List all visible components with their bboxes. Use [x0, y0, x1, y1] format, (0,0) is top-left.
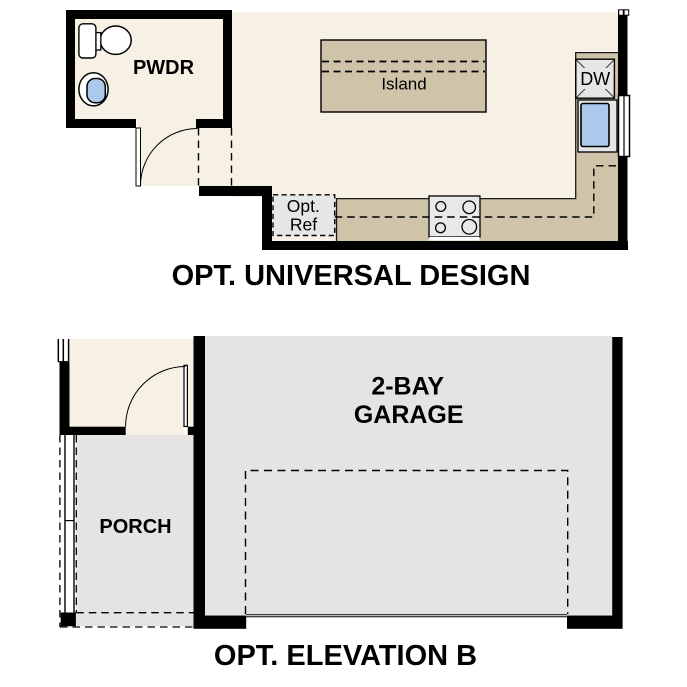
svg-text:OPT. ELEVATION B: OPT. ELEVATION B: [214, 640, 477, 672]
svg-text:DW: DW: [580, 69, 610, 89]
svg-text:Opt.: Opt.: [287, 196, 320, 216]
svg-text:PWDR: PWDR: [133, 57, 195, 79]
svg-text:GARAGE: GARAGE: [354, 401, 464, 429]
svg-text:PORCH: PORCH: [99, 516, 171, 538]
svg-text:OPT. UNIVERSAL DESIGN: OPT. UNIVERSAL DESIGN: [172, 260, 531, 292]
svg-text:2-BAY: 2-BAY: [371, 373, 444, 401]
svg-text:Ref: Ref: [290, 214, 317, 234]
svg-text:Island: Island: [381, 75, 426, 94]
